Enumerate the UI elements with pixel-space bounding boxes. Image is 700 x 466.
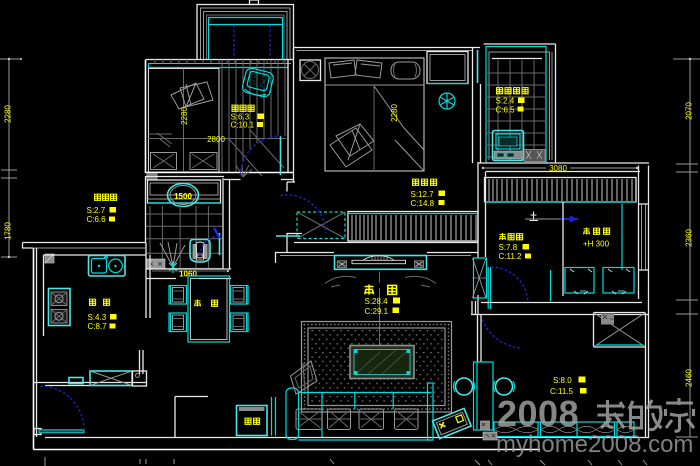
svg-text:S:2.7: S:2.7	[87, 206, 106, 215]
svg-text:S:2.4: S:2.4	[496, 97, 515, 106]
svg-text:2280: 2280	[390, 104, 399, 122]
svg-text:C:6.6: C:6.6	[87, 215, 107, 224]
svg-text:1500: 1500	[174, 192, 192, 201]
svg-text:C:14.8: C:14.8	[411, 199, 435, 208]
svg-text:C:11.2: C:11.2	[499, 252, 523, 261]
svg-text:S:12.7: S:12.7	[411, 190, 435, 199]
svg-text:C:10.1: C:10.1	[231, 121, 255, 130]
svg-text:2008: 2008	[497, 393, 579, 434]
svg-text:S:8.0: S:8.0	[553, 376, 572, 385]
svg-text:2070: 2070	[685, 102, 694, 120]
svg-text:S:7.8: S:7.8	[499, 243, 518, 252]
svg-text:C:8.7: C:8.7	[88, 322, 108, 331]
svg-text:C:29.1: C:29.1	[365, 307, 389, 316]
svg-text:S:28.4: S:28.4	[365, 297, 389, 306]
svg-text:S:4.3: S:4.3	[88, 313, 107, 322]
svg-text:myhome2008.com: myhome2008.com	[496, 431, 693, 458]
svg-text:2280: 2280	[4, 105, 13, 123]
svg-text:1780: 1780	[4, 222, 13, 240]
svg-text:2800: 2800	[207, 135, 225, 144]
svg-text:2280: 2280	[180, 107, 189, 125]
svg-text:C:6.5: C:6.5	[496, 106, 516, 115]
svg-text:2460: 2460	[685, 369, 694, 387]
svg-text:2360: 2360	[685, 229, 694, 247]
svg-text:+H 300: +H 300	[583, 240, 610, 249]
